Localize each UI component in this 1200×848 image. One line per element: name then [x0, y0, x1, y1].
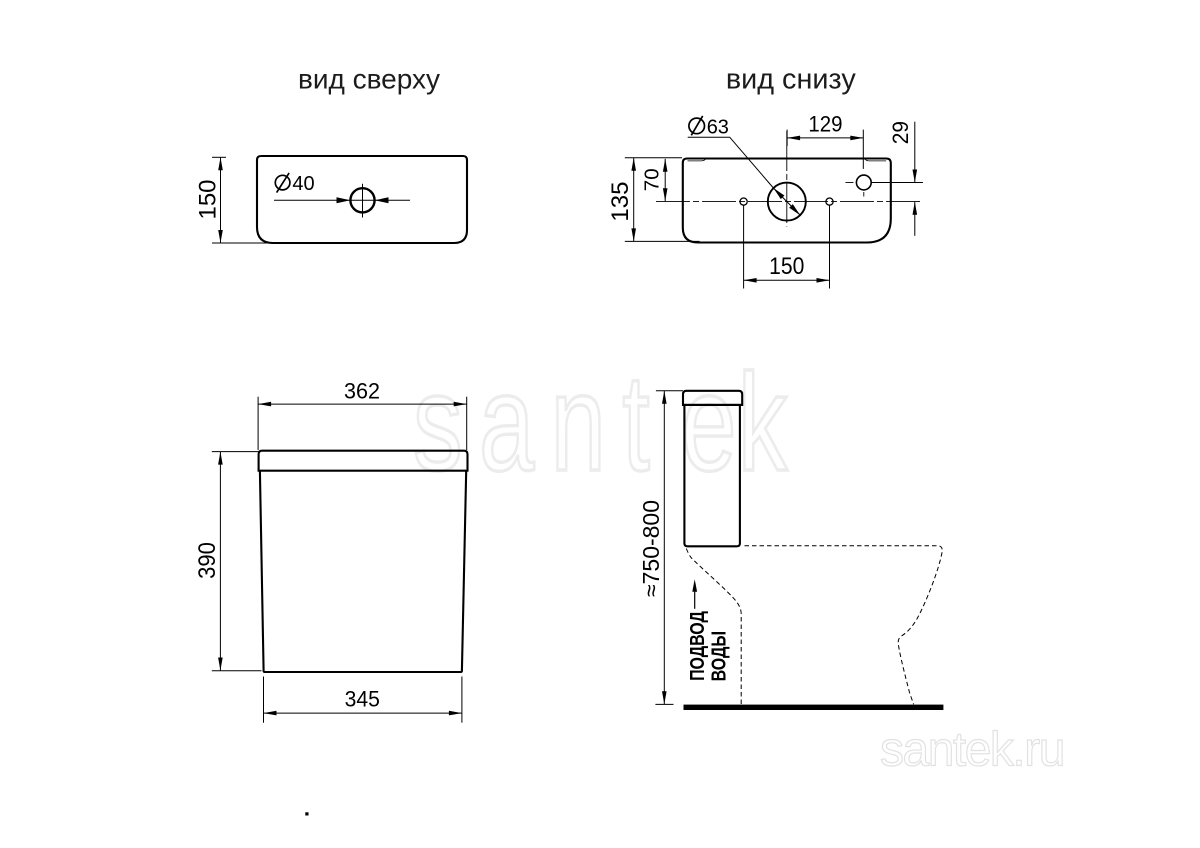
- svg-text:150: 150: [194, 179, 221, 219]
- svg-text:390: 390: [193, 542, 220, 579]
- svg-text:вид снизу: вид снизу: [726, 64, 856, 96]
- svg-text:345: 345: [345, 686, 380, 712]
- svg-text:135: 135: [607, 182, 634, 222]
- svg-text:santek.ru: santek.ru: [880, 724, 1064, 777]
- svg-text:362: 362: [344, 378, 380, 403]
- svg-text:150: 150: [769, 253, 804, 280]
- svg-text:70: 70: [640, 168, 663, 191]
- svg-text:29: 29: [888, 121, 913, 144]
- svg-text:santek: santek: [413, 346, 804, 500]
- svg-text:ПОДВОД: ПОДВОД: [685, 611, 708, 681]
- svg-text:129: 129: [808, 112, 842, 137]
- svg-text:вид сверху: вид сверху: [298, 64, 440, 95]
- svg-text:≈750-800: ≈750-800: [638, 500, 664, 597]
- svg-text:63: 63: [707, 117, 729, 139]
- svg-text:40: 40: [292, 173, 314, 195]
- svg-text:ВОДЫ: ВОДЫ: [707, 631, 730, 681]
